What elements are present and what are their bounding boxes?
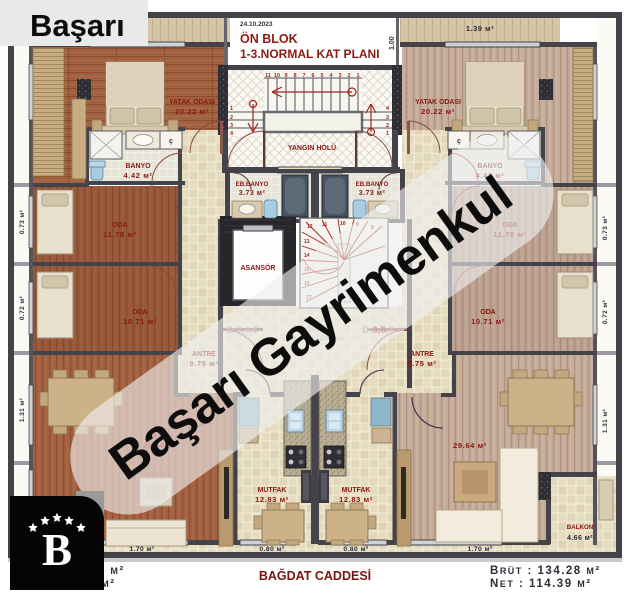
svg-text:11: 11 xyxy=(265,73,271,79)
svg-text:ODA: ODA xyxy=(132,309,147,316)
svg-text:MUTFAK: MUTFAK xyxy=(258,487,287,494)
svg-text:0.72 м²: 0.72 м² xyxy=(602,299,609,324)
svg-text:ç: ç xyxy=(457,138,461,145)
svg-text:13: 13 xyxy=(304,239,310,245)
svg-text:3.73 м²: 3.73 м² xyxy=(359,190,386,197)
svg-text:YATAK ODASI: YATAK ODASI xyxy=(169,99,215,106)
svg-text:BRÜT : 134.28 M²: BRÜT : 134.28 M² xyxy=(490,565,601,577)
svg-text:1-3.NORMAL KAT PLANI: 1-3.NORMAL KAT PLANI xyxy=(240,47,380,61)
svg-text:12: 12 xyxy=(307,224,313,230)
svg-text:1.31 м²: 1.31 м² xyxy=(602,408,609,433)
svg-text:7: 7 xyxy=(302,73,305,79)
svg-text:ÖN BLOK: ÖN BLOK xyxy=(240,31,298,46)
svg-text:2: 2 xyxy=(230,115,233,121)
svg-text:12.83 м²: 12.83 м² xyxy=(339,495,373,504)
svg-text:B: B xyxy=(42,525,72,575)
svg-text:24.10.2023: 24.10.2023 xyxy=(240,21,273,28)
svg-text:1.00: 1.00 xyxy=(389,36,396,50)
svg-text:9.75 м²: 9.75 м² xyxy=(408,359,437,368)
svg-text:20.22 м²: 20.22 м² xyxy=(421,107,455,116)
svg-text:BALKON: BALKON xyxy=(567,524,594,531)
svg-text:MUTFAK: MUTFAK xyxy=(342,487,371,494)
svg-text:2: 2 xyxy=(347,73,350,79)
svg-text:ODA: ODA xyxy=(480,309,495,316)
svg-text:12.83 м²: 12.83 м² xyxy=(255,495,289,504)
svg-text:2: 2 xyxy=(386,123,389,129)
svg-text:0.73 м²: 0.73 м² xyxy=(19,209,26,234)
svg-text:NET : 114.39 M²: NET : 114.39 M² xyxy=(490,578,592,590)
svg-text:ç: ç xyxy=(169,138,173,145)
svg-text:ANTRE: ANTRE xyxy=(410,351,434,358)
svg-text:EB.BANYO: EB.BANYO xyxy=(236,181,269,188)
svg-text:1: 1 xyxy=(356,73,359,79)
svg-text:9: 9 xyxy=(284,73,287,79)
svg-text:10.71 м²: 10.71 м² xyxy=(123,317,157,326)
svg-text:5: 5 xyxy=(320,73,323,79)
svg-text:11.78 м²: 11.78 м² xyxy=(103,230,136,239)
svg-text:0.80 м²: 0.80 м² xyxy=(343,546,369,553)
svg-text:Başarı: Başarı xyxy=(30,8,125,43)
svg-text:3.73 м²: 3.73 м² xyxy=(239,190,266,197)
svg-text:1: 1 xyxy=(230,106,233,112)
svg-text:3: 3 xyxy=(386,115,389,121)
svg-text:0.80 м²: 0.80 м² xyxy=(259,546,285,553)
svg-text:10: 10 xyxy=(340,221,346,227)
svg-text:1.70 м²: 1.70 м² xyxy=(129,546,155,553)
svg-text:20.22 м²: 20.22 м² xyxy=(175,107,209,116)
svg-text:0.72 м²: 0.72 м² xyxy=(19,295,26,320)
svg-text:10.71 м²: 10.71 м² xyxy=(471,317,505,326)
svg-text:1: 1 xyxy=(386,131,389,137)
svg-text:0.73 м²: 0.73 м² xyxy=(602,215,609,240)
svg-text:BAĞDAT CADDESİ: BAĞDAT CADDESİ xyxy=(259,568,371,583)
svg-text:EB.BANYO: EB.BANYO xyxy=(356,181,389,188)
svg-text:3: 3 xyxy=(230,123,233,129)
svg-text:29.64 м²: 29.64 м² xyxy=(453,441,487,450)
svg-text:6: 6 xyxy=(311,73,314,79)
svg-text:YATAK ODASI: YATAK ODASI xyxy=(415,99,461,106)
svg-text:10: 10 xyxy=(274,73,280,79)
svg-text:3: 3 xyxy=(338,73,341,79)
svg-text:8: 8 xyxy=(293,73,296,79)
svg-text:ASANSÖR: ASANSÖR xyxy=(240,263,275,272)
svg-text:11: 11 xyxy=(322,222,328,228)
svg-text:1.31 м²: 1.31 м² xyxy=(19,397,26,422)
svg-text:BANYO: BANYO xyxy=(126,163,152,170)
svg-text:YANGIN HOLÜ: YANGIN HOLÜ xyxy=(288,143,336,152)
svg-text:4.42 м²: 4.42 м² xyxy=(124,171,153,180)
svg-text:4.66 м²: 4.66 м² xyxy=(567,535,593,542)
svg-text:1.70 м²: 1.70 м² xyxy=(467,546,493,553)
svg-text:ODA: ODA xyxy=(112,222,127,229)
svg-text:1.39 м²: 1.39 м² xyxy=(466,24,494,33)
